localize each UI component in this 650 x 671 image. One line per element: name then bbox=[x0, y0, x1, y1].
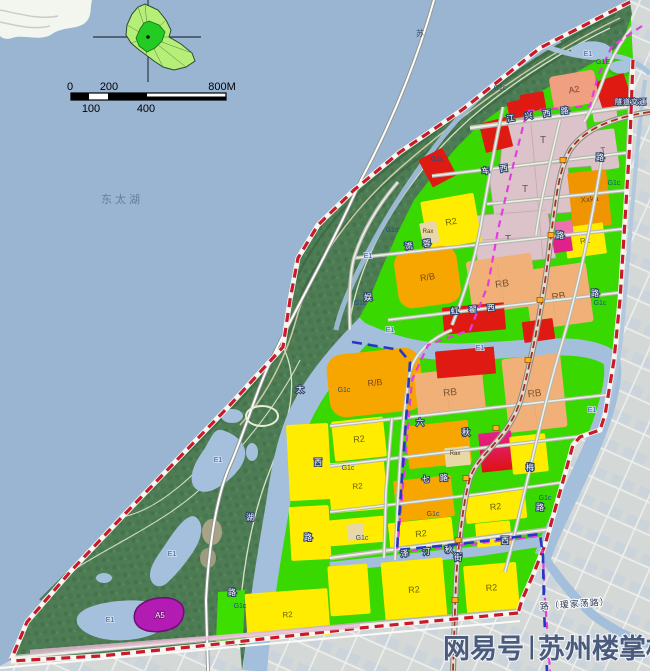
svg-text:秋: 秋 bbox=[462, 427, 470, 437]
svg-text:苏州楼掌柜: 苏州楼掌柜 bbox=[538, 634, 650, 664]
svg-text:E1: E1 bbox=[106, 617, 115, 624]
svg-text:隧道交通: 隧道交通 bbox=[615, 97, 647, 106]
svg-text:R2: R2 bbox=[489, 501, 501, 512]
svg-text:R/B: R/B bbox=[367, 377, 383, 389]
svg-text:R2: R2 bbox=[444, 216, 457, 228]
svg-text:太: 太 bbox=[296, 384, 304, 394]
svg-text:400: 400 bbox=[137, 103, 155, 115]
svg-text:西: 西 bbox=[501, 536, 509, 545]
svg-text:湖: 湖 bbox=[246, 513, 254, 522]
svg-text:街: 街 bbox=[454, 552, 462, 562]
svg-text:Rax: Rax bbox=[423, 229, 434, 235]
svg-text:E1: E1 bbox=[476, 345, 485, 352]
svg-text:E1: E1 bbox=[386, 327, 395, 334]
svg-text:G1c: G1c bbox=[356, 535, 369, 542]
svg-text:G1c: G1c bbox=[494, 85, 507, 92]
svg-text:T: T bbox=[540, 135, 546, 146]
svg-text:G1c: G1c bbox=[354, 300, 367, 307]
svg-text:西: 西 bbox=[314, 458, 322, 467]
svg-text:T: T bbox=[522, 184, 528, 195]
svg-text:路: 路 bbox=[228, 587, 236, 597]
svg-text:G1c: G1c bbox=[342, 465, 355, 472]
svg-text:0: 0 bbox=[67, 81, 73, 93]
svg-text:200: 200 bbox=[100, 81, 118, 93]
svg-text:G1c: G1c bbox=[338, 387, 351, 394]
svg-text:G1c: G1c bbox=[539, 495, 552, 502]
svg-text:路: 路 bbox=[556, 230, 564, 240]
svg-text:G1c: G1c bbox=[234, 603, 247, 610]
svg-text:路: 路 bbox=[591, 288, 599, 298]
svg-text:路: 路 bbox=[304, 532, 312, 542]
svg-text:R2: R2 bbox=[282, 610, 293, 620]
svg-text:R2: R2 bbox=[352, 481, 364, 491]
svg-text:R2: R2 bbox=[415, 528, 427, 539]
svg-text:梅: 梅 bbox=[526, 462, 534, 472]
svg-text:RB: RB bbox=[443, 387, 458, 399]
svg-text:E1: E1 bbox=[584, 51, 593, 58]
svg-text:G1c: G1c bbox=[427, 511, 440, 518]
svg-text:G1c: G1c bbox=[386, 227, 399, 234]
svg-text:E1: E1 bbox=[588, 407, 597, 414]
svg-text:E1: E1 bbox=[364, 253, 373, 260]
svg-text:R2: R2 bbox=[353, 434, 365, 445]
svg-text:A5: A5 bbox=[155, 611, 165, 620]
svg-text:R2: R2 bbox=[485, 582, 497, 593]
svg-text:G1c: G1c bbox=[594, 300, 607, 307]
svg-text:六: 六 bbox=[416, 417, 424, 427]
svg-text:G1E: G1E bbox=[596, 59, 610, 66]
svg-text:100: 100 bbox=[82, 103, 100, 115]
svg-text:路: 路 bbox=[596, 152, 604, 162]
svg-text:R2: R2 bbox=[408, 584, 420, 595]
svg-text:东太湖: 东太湖 bbox=[101, 193, 143, 206]
svg-text:E1: E1 bbox=[214, 457, 223, 464]
svg-text:Rax: Rax bbox=[450, 451, 461, 457]
svg-text:路: 路 bbox=[536, 502, 544, 512]
svg-text:RB: RB bbox=[527, 388, 542, 400]
svg-text:G1c: G1c bbox=[431, 156, 444, 163]
svg-text:800M: 800M bbox=[208, 81, 236, 93]
svg-text:苏: 苏 bbox=[416, 28, 424, 38]
svg-text:网易号: 网易号 bbox=[443, 634, 524, 664]
svg-text:G1c: G1c bbox=[608, 180, 621, 187]
svg-text:E1: E1 bbox=[168, 551, 177, 558]
svg-text:A2: A2 bbox=[568, 84, 581, 96]
svg-text:R/B: R/B bbox=[419, 271, 435, 283]
svg-text:RB: RB bbox=[494, 278, 510, 291]
